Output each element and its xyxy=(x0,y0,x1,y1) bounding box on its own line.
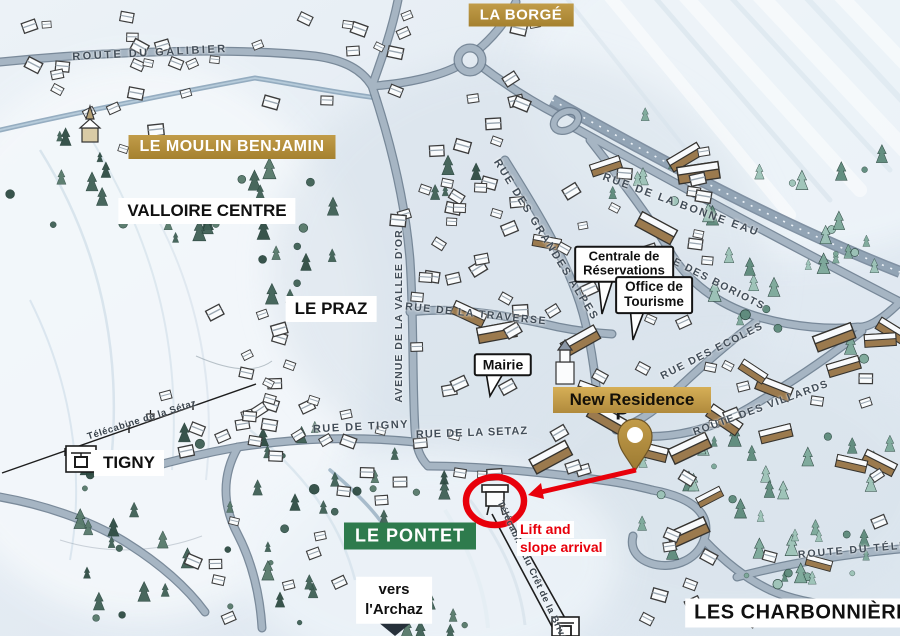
annotation-text-line1: Lift and xyxy=(517,521,574,538)
street-label-route-du-galibier: ROUTE DU GALIBIER xyxy=(72,43,228,63)
place-label-vers-archaz: vers l'Archaz xyxy=(356,577,432,624)
annotation-text-line2: slope arrival xyxy=(517,539,606,556)
callout-office-de-tourisme: Office de Tourisme xyxy=(615,276,693,314)
callout-centrale-line1: Centrale de xyxy=(589,249,660,264)
street-label-avenue-de-la-vallee-dor: AVENUE DE LA VALLEE D'OR xyxy=(393,229,405,402)
street-label-rue-de-tigny: RUE DE TIGNY xyxy=(313,418,410,435)
place-label-new-residence: New Residence xyxy=(553,387,711,413)
place-label-les-charbonnieres: LES CHARBONNIÈRES xyxy=(685,599,900,628)
callout-office-line1: Office de xyxy=(625,279,683,294)
place-label-le-praz: LE PRAZ xyxy=(286,296,377,322)
lift-label-telecabine-brive: Télécabine du Crêt de la Brive xyxy=(495,499,570,636)
resort-map: ROUTE DU GALIBIER RUE DE LA BONNE EAU RU… xyxy=(0,0,900,636)
callout-mairie: Mairie xyxy=(474,353,532,376)
place-label-la-borge: LA BORGÉ xyxy=(469,4,574,27)
street-label-rue-de-la-setaz: RUE DE LA SETAZ xyxy=(416,425,529,441)
street-label-rue-des-ecoles: RUE DES ECOLES xyxy=(659,320,766,382)
place-label-le-pontet: LE PONTET xyxy=(344,523,476,550)
place-label-le-moulin-benjamin: LE MOULIN BENJAMIN xyxy=(129,135,336,159)
archaz-line2: l'Archaz xyxy=(365,601,423,618)
labels-layer: ROUTE DU GALIBIER RUE DE LA BONNE EAU RU… xyxy=(0,0,900,636)
place-label-valloire-centre: VALLOIRE CENTRE xyxy=(118,198,295,224)
street-label-rue-des-grandes-alpes: RUE DES GRANDES ALPES xyxy=(491,157,601,323)
street-label-rue-de-la-traverse: RUE DE LA TRAVERSE xyxy=(405,301,548,328)
street-label-route-des-villards: ROUTE DES VILLARDS xyxy=(691,378,830,438)
lift-label-telecabine-setaz: Télécabine de la Sétaz xyxy=(86,398,198,443)
street-label-route-du-telegraphe: ROUTE DU TÉLÉG xyxy=(797,538,900,560)
callout-office-line2: Tourisme xyxy=(624,294,684,309)
place-label-tigny: TIGNY xyxy=(94,450,164,476)
archaz-line1: vers xyxy=(379,581,410,598)
street-label-rue-de-la-bonne-eau: RUE DE LA BONNE EAU xyxy=(601,171,761,239)
